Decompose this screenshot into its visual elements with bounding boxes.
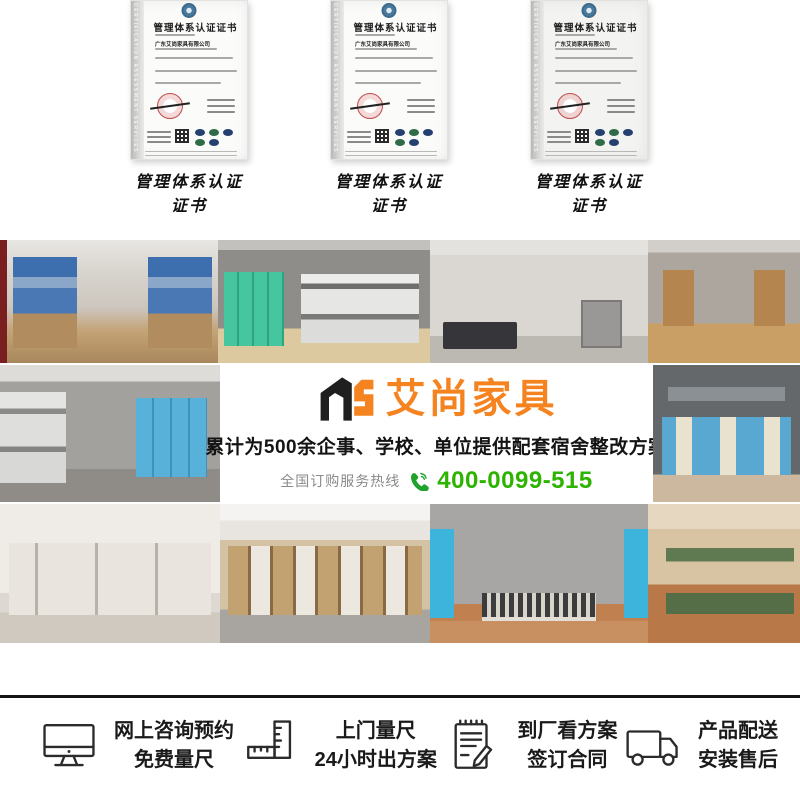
service-online-consult: 网上咨询预约 免费量尺 xyxy=(40,717,234,775)
gallery-photo-single-bed-room xyxy=(430,240,648,363)
hotline-row: 全国订购服务热线 400-0099-515 xyxy=(280,467,592,495)
gallery-photo-white-bunks xyxy=(0,504,220,643)
section-divider xyxy=(0,695,800,698)
gallery-photo-wood-cabinet-dorm xyxy=(648,240,800,363)
certificate-caption: 管理体系认证证书 xyxy=(530,168,648,216)
accreditation-badge-icon xyxy=(195,129,205,136)
gallery-photo-loft-wardrobe-combo xyxy=(220,504,430,643)
certificate-3: CERTIFICATION ASSESSMENT SERVICES 管理体系认证… xyxy=(530,0,648,216)
certificate-side-band: CERTIFICATION ASSESSMENT SERVICES xyxy=(331,1,344,160)
service-line1: 到厂看方案 xyxy=(517,717,617,746)
service-line2: 签订合同 xyxy=(517,746,617,775)
certificate-title: 管理体系认证证书 xyxy=(344,20,447,34)
certificate-image: CERTIFICATION ASSESSMENT SERVICES 管理体系认证… xyxy=(330,0,448,160)
certification-emblem-icon xyxy=(382,3,397,18)
qr-code-icon xyxy=(175,129,189,143)
service-line2: 免费量尺 xyxy=(114,746,234,775)
accreditation-badge-icon xyxy=(395,129,405,136)
project-photo-gallery: 艾尚家具 累计为500余企事、学校、单位提供配套宿舍整改方案 全国订购服务热线 … xyxy=(0,240,800,643)
service-line1: 网上咨询预约 xyxy=(114,717,234,746)
monitor-icon xyxy=(40,717,98,775)
brand-logo: 艾尚家具 xyxy=(316,375,558,423)
certificate-company: 广东艾尚家具有限公司 xyxy=(555,40,610,48)
certificate-number-line xyxy=(155,34,195,36)
certificate-1: CERTIFICATION ASSESSMENT SERVICES 管理体系认证… xyxy=(130,0,248,216)
certificate-side-band: CERTIFICATION ASSESSMENT SERVICES xyxy=(131,1,144,160)
gallery-photo-green-steel-bunks xyxy=(648,504,800,643)
certificate-company: 广东艾尚家具有限公司 xyxy=(355,40,410,48)
hotline-number[interactable]: 400-0099-515 xyxy=(437,467,592,495)
service-factory-contract: 到厂看方案 签订合同 xyxy=(443,717,617,775)
qr-code-icon xyxy=(575,129,589,143)
service-line2: 安装售后 xyxy=(698,746,778,775)
red-seal-icon xyxy=(557,93,583,119)
certificate-caption: 管理体系认证证书 xyxy=(130,168,248,216)
certificate-company: 广东艾尚家具有限公司 xyxy=(155,40,210,48)
brand-banner: 艾尚家具 累计为500余企事、学校、单位提供配套宿舍整改方案 全国订购服务热线 … xyxy=(220,365,653,502)
certificate-image: CERTIFICATION ASSESSMENT SERVICES 管理体系认证… xyxy=(130,0,248,160)
gallery-photo-blue-bunk-dorm xyxy=(0,240,218,363)
ruler-icon xyxy=(241,717,299,775)
gallery-photo-loft-bed-blue-units xyxy=(653,365,800,502)
certification-emblem-icon xyxy=(582,3,597,18)
service-delivery-install: 产品配送 安装售后 xyxy=(624,717,778,775)
contract-icon xyxy=(443,717,501,775)
as-logo-icon xyxy=(316,375,378,423)
red-seal-icon xyxy=(157,93,183,119)
gallery-photo-blue-wardrobe-beds xyxy=(430,504,648,643)
striped-bed xyxy=(482,593,595,621)
brand-name: 艾尚家具 xyxy=(386,379,558,419)
service-line1: 产品配送 xyxy=(698,717,778,746)
certificate-title: 管理体系认证证书 xyxy=(144,20,247,34)
gallery-photo-green-lockers xyxy=(218,240,430,363)
certificate-caption: 管理体系认证证书 xyxy=(330,168,448,216)
certificates-section: CERTIFICATION ASSESSMENT SERVICES 管理体系认证… xyxy=(0,0,800,238)
certificate-image: CERTIFICATION ASSESSMENT SERVICES 管理体系认证… xyxy=(530,0,648,160)
phone-icon xyxy=(408,470,429,491)
service-line1: 上门量尺 xyxy=(315,717,437,746)
accreditation-badge-icon xyxy=(595,129,605,136)
service-line2: 24小时出方案 xyxy=(315,746,437,775)
banner-tagline: 累计为500余企事、学校、单位提供配套宿舍整改方案 xyxy=(205,432,667,459)
service-onsite-measure: 上门量尺 24小时出方案 xyxy=(241,717,437,775)
certification-emblem-icon xyxy=(182,3,197,18)
certificate-2: CERTIFICATION ASSESSMENT SERVICES 管理体系认证… xyxy=(330,0,448,216)
qr-code-icon xyxy=(375,129,389,143)
truck-icon xyxy=(624,717,682,775)
red-seal-icon xyxy=(357,93,383,119)
certificate-side-band: CERTIFICATION ASSESSMENT SERVICES xyxy=(531,1,544,160)
services-strip: 网上咨询预约 免费量尺 上门量尺 24小时出方案 xyxy=(0,700,800,792)
promo-page: CERTIFICATION ASSESSMENT SERVICES 管理体系认证… xyxy=(0,0,800,800)
gallery-photo-grey-dorm xyxy=(0,365,220,502)
hotline-label: 全国订购服务热线 xyxy=(280,471,400,491)
certificate-title: 管理体系认证证书 xyxy=(544,20,647,34)
